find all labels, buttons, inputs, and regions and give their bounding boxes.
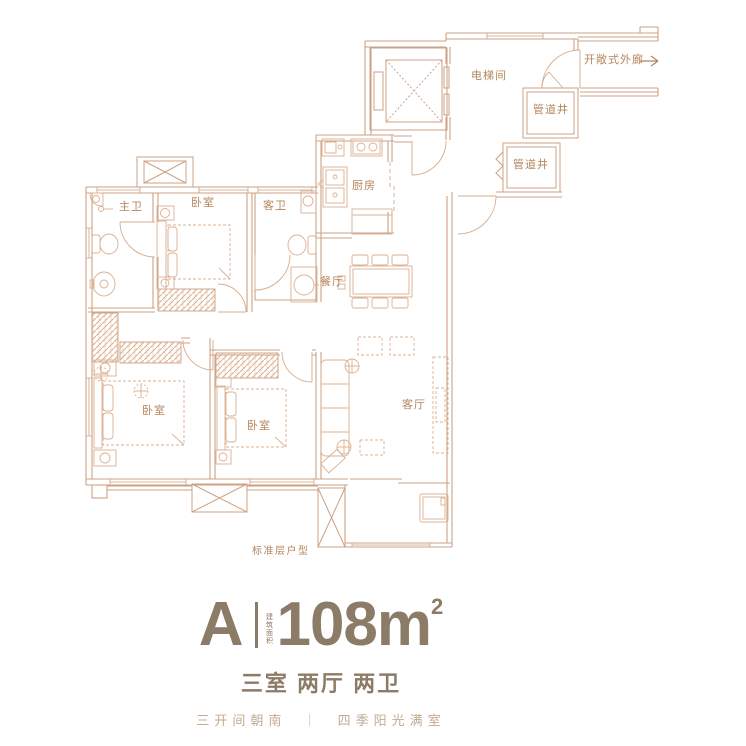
area-note-vertical: 建筑面积 [263,609,273,649]
unit-area-row: A 建筑面积 108m 2 [0,590,642,660]
unit-title-block: A 建筑面积 108m 2 三室 两厅 两卫 三开间朝南 ｜ 四季阳光满室 [0,590,642,729]
room-label-dining: 餐厅 [320,276,344,288]
room-label-elevator-hall: 电梯间 [471,70,507,82]
tagline-left: 三开间朝南 [196,713,286,728]
room-label-master-bath: 主卫 [119,201,143,213]
tagline-divider: ｜ [303,713,321,728]
area-value: 108m [276,594,431,656]
room-label-bedroom-north: 卧室 [191,197,215,209]
windows [86,33,543,547]
wardrobes [92,289,278,378]
layout-summary: 三室 两厅 两卫 [0,666,642,698]
floor-plan: 主卫 卧室 客卫 厨房 餐厅 电梯间 管道井 管道井 开敞式外廊 卧室 卧室 客… [0,0,746,746]
room-label-living-room: 客厅 [402,399,426,411]
room-label-bedroom-west: 卧室 [142,405,166,417]
tagline: 三开间朝南 ｜ 四季阳光满室 [0,710,642,729]
room-label-guest-bath: 客卫 [263,200,287,212]
room-label-kitchen: 厨房 [352,180,376,192]
doors [120,50,580,382]
area-superscript: 2 [431,594,443,620]
floor-type-note: 标准层户型 [252,542,310,557]
room-label-bedroom-middle: 卧室 [247,420,271,432]
title-divider [255,602,258,648]
room-label-pipe-shaft-upper: 管道井 [533,104,569,116]
walls [86,27,658,547]
room-label-pipe-shaft-lower: 管道井 [513,159,549,171]
unit-letter: A [199,594,244,656]
tagline-right: 四季阳光满室 [338,713,446,728]
room-label-open-corridor: 开敞式外廊 [584,54,644,66]
